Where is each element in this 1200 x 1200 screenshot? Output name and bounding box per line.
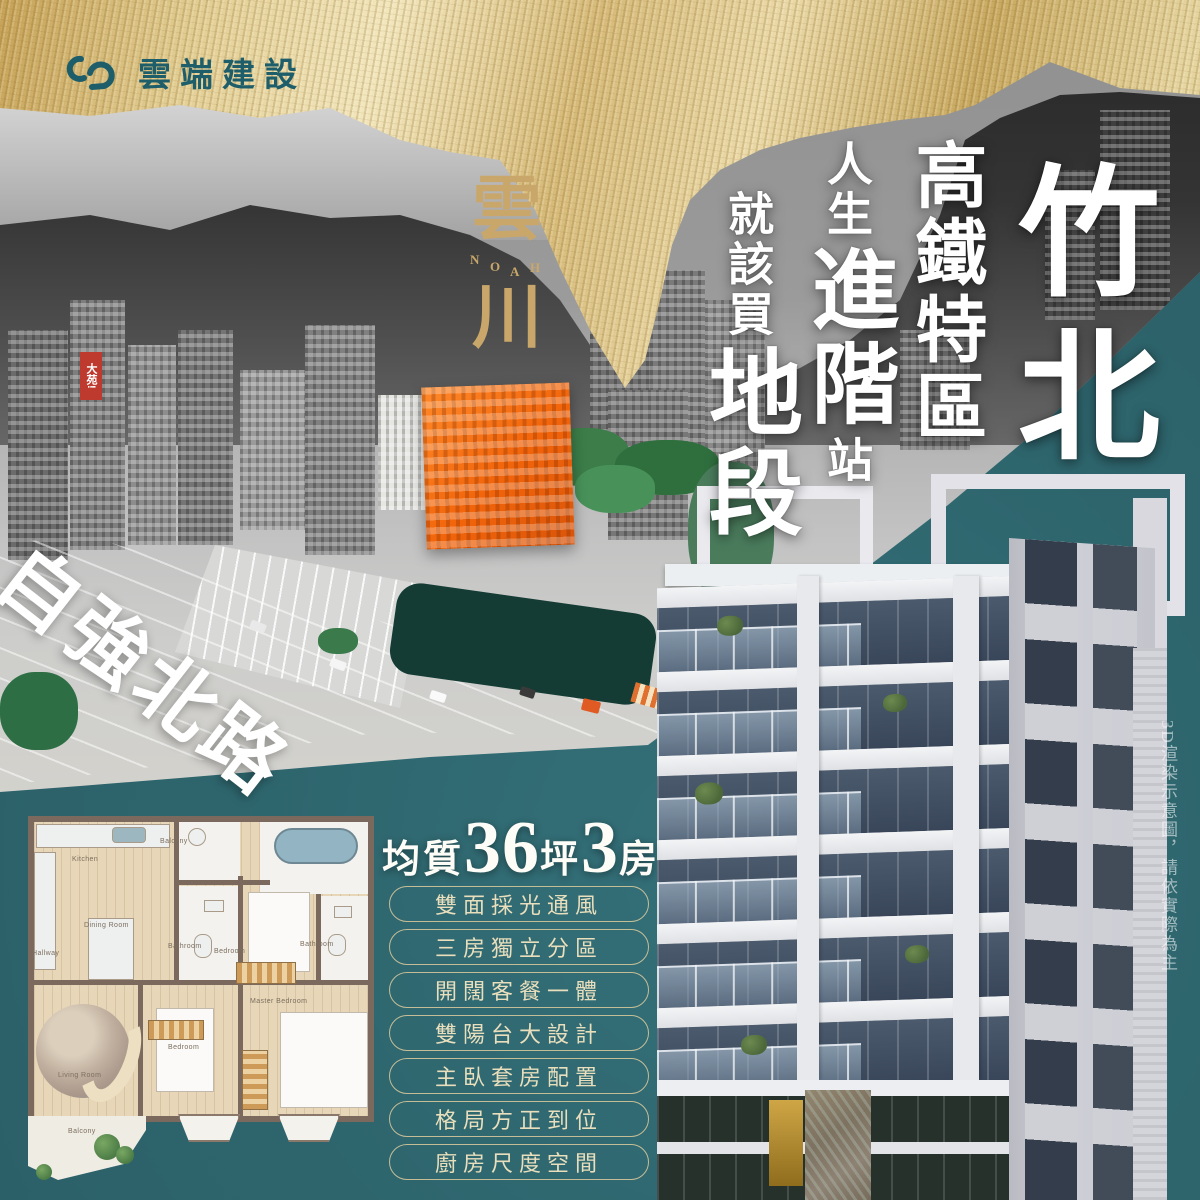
feature-pill: 雙陽台大設計 <box>389 1015 649 1051</box>
phrase1-top: 人生 <box>821 140 872 240</box>
spec-prefix: 均質 <box>382 828 464 883</box>
phrase2-small: 就該買 <box>722 190 773 340</box>
headline-city: 竹北 <box>1004 158 1146 486</box>
floor-plan: Kitchen Balcony Dining Room Hallway Bath… <box>28 816 374 1200</box>
developer-logo: 雲端建設 <box>60 48 306 96</box>
headline-district: 高鐵特區 <box>908 138 980 446</box>
phrase1-main: 進階 <box>798 244 895 432</box>
wall <box>316 894 321 982</box>
building-render <box>645 468 1170 1200</box>
project-brand: 雲 N O A H 川 <box>452 176 562 354</box>
ground-floor-lobby <box>657 1080 1009 1200</box>
room-label: Bedroom <box>168 1044 199 1051</box>
feature-pill: 主臥套房配置 <box>389 1058 649 1094</box>
room-label: Balcony <box>160 838 188 845</box>
headline-phrase-2: 就該買 地段 <box>700 190 794 544</box>
bay-window <box>278 1114 340 1142</box>
brand-char-bottom: 川 <box>452 284 562 354</box>
bed <box>248 892 310 972</box>
balcony-plant <box>36 1164 52 1180</box>
headline-phrase-1: 人生 進階 站 <box>802 140 890 486</box>
balcony-plant <box>116 1146 134 1164</box>
wall <box>34 980 368 985</box>
wardrobe <box>242 1050 268 1110</box>
sink <box>334 906 352 918</box>
phrase2-main: 地段 <box>695 344 799 544</box>
gold-entrance-door <box>769 1100 803 1186</box>
washer <box>188 828 206 846</box>
wall <box>174 880 270 885</box>
room-label: Hallway <box>32 950 59 957</box>
room-label: Bathroom <box>168 943 202 950</box>
wall <box>174 822 179 982</box>
city-tower <box>70 300 125 550</box>
tree-cluster <box>575 465 655 513</box>
feature-pill: 雙面採光通風 <box>389 886 649 922</box>
wardrobe <box>148 1020 204 1040</box>
window-strip <box>1025 539 1077 1200</box>
city-building-white <box>378 395 426 510</box>
brand-letter: N <box>470 252 480 268</box>
tree-cluster <box>0 672 78 750</box>
feature-list: 雙面採光通風 三房獨立分區 開闊客餐一體 雙陽台大設計 主臥套房配置 格局方正到… <box>389 886 649 1187</box>
unit-spec: 均質 36 坪 3 房 <box>382 806 660 891</box>
room-label: Bathroom <box>300 941 334 948</box>
city-tower <box>305 325 375 555</box>
sink <box>204 900 224 912</box>
facade-pier <box>797 576 819 1080</box>
room-label: Dining Room <box>84 922 129 929</box>
kitchen-counter <box>36 824 170 848</box>
spec-rooms-number: 3 <box>581 806 619 891</box>
render-disclaimer: 3D渲染示意圖，請依實際為主 <box>1155 720 1180 973</box>
room-label: Living Room <box>58 1072 101 1079</box>
bay-window <box>178 1114 240 1142</box>
tree-cluster <box>318 628 358 654</box>
bathtub <box>274 828 358 864</box>
room-label: Bedroom <box>214 948 245 955</box>
brand-char-top: 雲 <box>452 176 562 246</box>
city-tower <box>128 345 176 545</box>
room-label: Master Bedroom <box>250 998 307 1005</box>
wardrobe <box>236 962 296 984</box>
billboard-sign: 大苑! <box>80 352 102 400</box>
kitchen-sink <box>112 827 146 843</box>
spec-area-unit: 坪 <box>540 828 581 883</box>
room-balcony-top <box>178 822 240 882</box>
room-label: Kitchen <box>72 856 98 863</box>
marble-column <box>805 1090 871 1200</box>
brand-letter: A <box>510 264 520 280</box>
feature-pill: 三房獨立分區 <box>389 929 649 965</box>
feature-pill: 格局方正到位 <box>389 1101 649 1137</box>
window-strip <box>1093 544 1137 1200</box>
feature-pill: 廚房尺度空間 <box>389 1144 649 1180</box>
city-tower <box>240 370 310 530</box>
brand-letter: O <box>490 259 501 275</box>
spec-area-number: 36 <box>464 806 540 891</box>
developer-name: 雲端建設 <box>138 48 306 96</box>
brand-letter: H <box>530 260 541 276</box>
feature-pill: 開闊客餐一體 <box>389 972 649 1008</box>
cloud-logo-icon <box>60 49 126 95</box>
facade-pier <box>953 576 979 1080</box>
master-bed <box>280 1012 368 1108</box>
highlighted-site-building <box>421 382 575 549</box>
city-tower <box>178 330 233 545</box>
spec-rooms-unit: 房 <box>619 828 660 883</box>
room-label: Balcony <box>68 1128 96 1135</box>
brand-latin-name: N O A H <box>452 252 562 278</box>
phrase1-bottom: 站 <box>821 436 872 486</box>
property-ad-poster: 大苑! <box>0 0 1200 1200</box>
